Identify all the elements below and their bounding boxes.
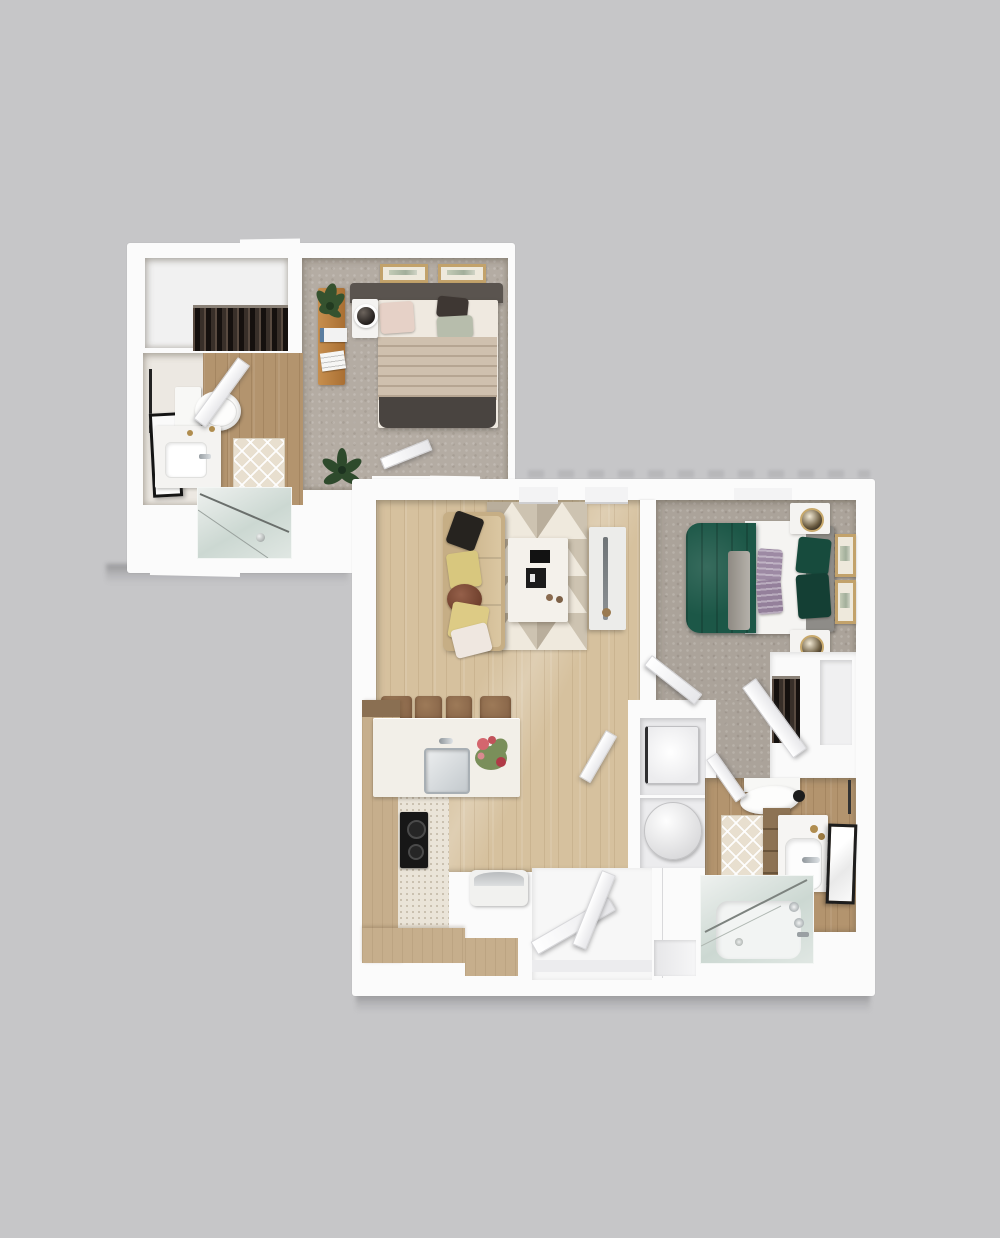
- wall-art-2: [438, 264, 486, 283]
- potted-plant: [310, 282, 350, 328]
- coffee-table: [508, 538, 568, 622]
- wall-mirror: [826, 824, 858, 905]
- blush-pillow: [379, 301, 415, 334]
- hall-panel: [654, 940, 696, 976]
- gray-fold: [728, 551, 750, 630]
- glass-bathtub: [700, 875, 814, 964]
- table-lamp: [357, 307, 375, 325]
- window-living-1: [519, 487, 558, 504]
- shower-drain: [256, 533, 265, 542]
- edge-chip-2: [430, 476, 480, 482]
- art-print: [840, 593, 850, 608]
- gold-knob-1: [187, 430, 193, 436]
- edge-chip-1: [240, 238, 300, 244]
- entry: [532, 868, 652, 980]
- books: [320, 328, 347, 342]
- black-box: [526, 568, 546, 588]
- magazine: [320, 350, 346, 371]
- burner-2: [408, 844, 424, 860]
- entry-threshold: [532, 960, 652, 972]
- art-print: [389, 270, 416, 275]
- decor-dot-2: [556, 596, 563, 603]
- shower-room: [197, 487, 292, 559]
- washer: [645, 726, 699, 784]
- purple-pillow-1: [756, 548, 783, 583]
- tub-handle-1: [789, 902, 799, 912]
- purple-pillow-2: [756, 579, 784, 615]
- wall-art-1: [380, 264, 428, 283]
- tv-console: [589, 527, 626, 630]
- flower-vase: [465, 728, 513, 780]
- bedroom1-door: [380, 439, 433, 470]
- bench-back: [474, 872, 524, 886]
- bedroom-1: [302, 258, 508, 490]
- console-decor: [602, 608, 611, 617]
- tub-handle-2: [794, 918, 804, 928]
- round-unit: [644, 802, 702, 860]
- shelf-pipe: [848, 780, 851, 814]
- walk-in-closet: [145, 258, 288, 348]
- green-pillow-2: [796, 573, 832, 619]
- entry-hall-closet: [652, 868, 700, 978]
- decor-dot-1: [546, 594, 553, 601]
- bath-mat-2: [721, 815, 768, 879]
- edge-artifact-strip: [498, 470, 870, 478]
- plumbing-dot: [793, 790, 805, 802]
- floor-plan-image: [0, 0, 1000, 1238]
- vanity: [155, 426, 221, 488]
- lamp-top: [800, 508, 824, 532]
- blanket: [378, 337, 497, 400]
- gold-soap-1: [810, 825, 818, 833]
- cabinet-top-cap: [362, 700, 400, 717]
- black-book: [530, 550, 550, 563]
- sink-faucet: [439, 738, 453, 744]
- cooktop: [400, 812, 428, 868]
- burner-1: [407, 820, 426, 839]
- sage-pillow: [436, 315, 473, 339]
- wall-art-4: [835, 580, 856, 624]
- gold-knob-2: [209, 426, 215, 432]
- vanity-faucet: [199, 454, 211, 459]
- gold-soap-2: [818, 833, 825, 840]
- cabinet-step: [465, 938, 518, 976]
- art-print: [840, 546, 850, 561]
- bed: [378, 300, 498, 428]
- sectional-sofa: [443, 512, 505, 651]
- art-print: [447, 270, 474, 275]
- green-pillow-1: [795, 536, 832, 575]
- shower-glass-frame: [198, 488, 291, 558]
- kitchen-island: [373, 718, 520, 797]
- wall-art-3: [835, 534, 856, 577]
- bathroom-1: [143, 353, 303, 505]
- closet-recess: [820, 660, 852, 745]
- tub-spout: [797, 932, 809, 937]
- bench: [470, 870, 528, 906]
- bed-footer: [379, 397, 496, 428]
- tub-drain: [735, 938, 743, 946]
- faucet-2: [802, 857, 820, 863]
- unit2-drop-shadow: [356, 994, 870, 1012]
- vanity-basin: [165, 442, 207, 478]
- living-room: [376, 500, 651, 872]
- kitchen-sink: [424, 748, 470, 794]
- clothes-rack: [193, 305, 288, 351]
- cabinet-row: [362, 928, 465, 963]
- window-living-2: [585, 487, 628, 504]
